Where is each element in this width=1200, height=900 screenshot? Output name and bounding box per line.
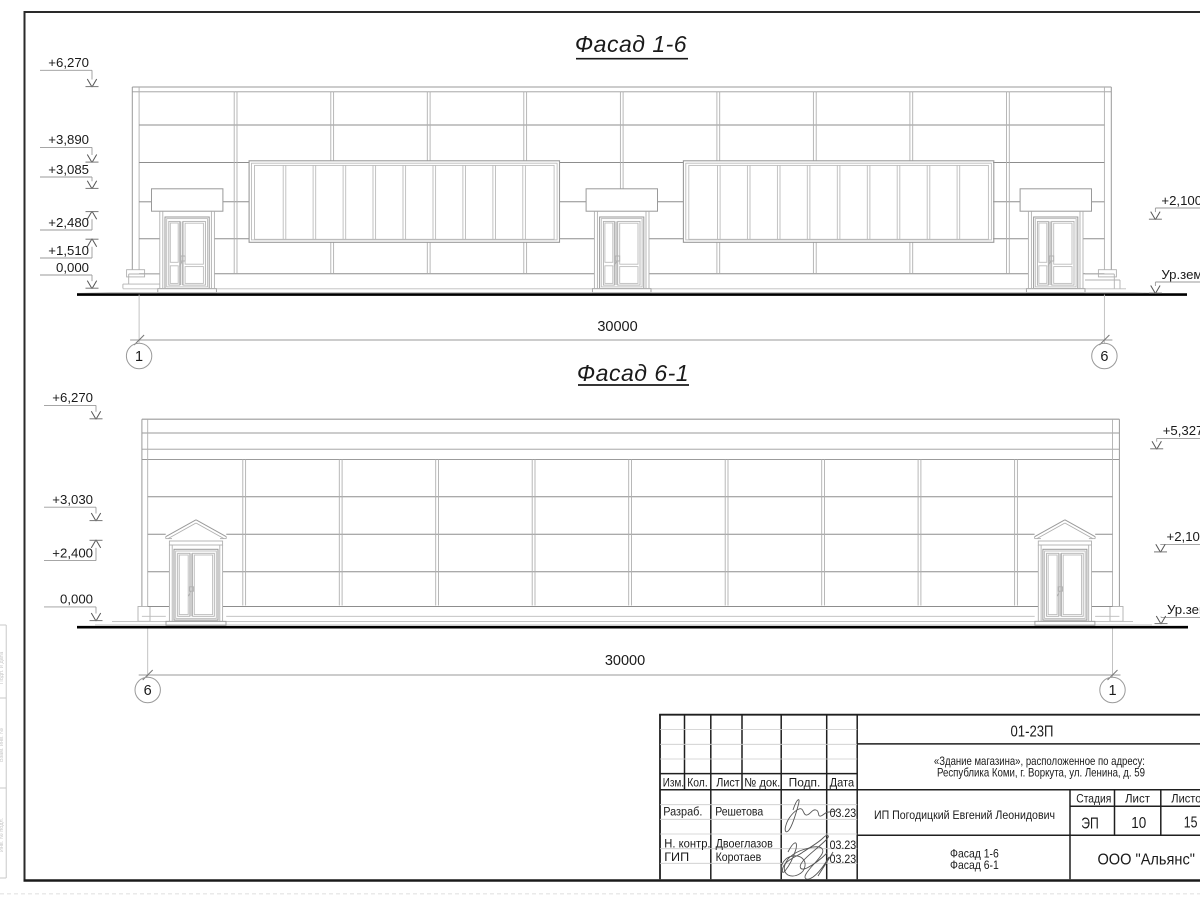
svg-text:0,000: 0,000 bbox=[60, 592, 93, 607]
svg-text:Инв. № подл.: Инв. № подл. bbox=[0, 817, 5, 852]
svg-text:Фасад 6-1: Фасад 6-1 bbox=[950, 858, 999, 872]
svg-text:+6,270: +6,270 bbox=[52, 390, 93, 405]
svg-text:ГИП: ГИП bbox=[664, 850, 689, 864]
svg-text:01-23П: 01-23П bbox=[1011, 724, 1054, 741]
svg-text:+6,270: +6,270 bbox=[48, 55, 89, 70]
svg-text:0,000: 0,000 bbox=[56, 260, 89, 275]
svg-text:Ур.земли: Ур.земли bbox=[1161, 267, 1200, 282]
svg-text:15: 15 bbox=[1184, 815, 1198, 832]
svg-text:Фасад 6-1: Фасад 6-1 bbox=[577, 360, 689, 386]
svg-text:Листов: Листов bbox=[1171, 792, 1200, 806]
svg-text:Двоеглазов: Двоеглазов bbox=[716, 836, 773, 850]
svg-text:6: 6 bbox=[144, 683, 152, 699]
svg-text:ИП Погодицкий Евгений Леонидов: ИП Погодицкий Евгений Леонидович bbox=[874, 808, 1055, 822]
svg-text:Лист: Лист bbox=[716, 775, 740, 789]
svg-text:Изм.: Изм. bbox=[663, 775, 684, 789]
svg-text:03.23: 03.23 bbox=[830, 806, 857, 820]
svg-text:№ док.: № док. bbox=[744, 775, 780, 789]
svg-text:+1,510: +1,510 bbox=[48, 243, 89, 258]
svg-text:1: 1 bbox=[1108, 683, 1116, 699]
svg-text:+2,400: +2,400 bbox=[52, 545, 93, 560]
svg-text:Решетова: Решетова bbox=[715, 805, 763, 819]
svg-text:Фасад 1-6: Фасад 1-6 bbox=[575, 31, 687, 57]
svg-text:Подп.: Подп. bbox=[789, 775, 821, 789]
svg-text:Стадия: Стадия bbox=[1076, 792, 1111, 806]
svg-text:+3,030: +3,030 bbox=[52, 492, 93, 507]
svg-text:Взам. инв. №: Взам. инв. № bbox=[0, 728, 5, 762]
svg-text:Коротаев: Коротаев bbox=[716, 850, 762, 864]
svg-text:10: 10 bbox=[1131, 815, 1146, 832]
svg-text:Ур.земли: Ур.земли bbox=[1167, 602, 1200, 617]
svg-text:ООО "Альянс": ООО "Альянс" bbox=[1097, 852, 1195, 869]
svg-text:+2,100: +2,100 bbox=[1161, 193, 1200, 208]
svg-text:Подп. и дата: Подп. и дата bbox=[0, 651, 5, 684]
svg-text:03.23: 03.23 bbox=[830, 838, 857, 852]
svg-text:Н. контр.: Н. контр. bbox=[664, 836, 710, 850]
svg-text:Республика Коми, г. Воркута, у: Республика Коми, г. Воркута, ул. Ленина,… bbox=[937, 765, 1145, 779]
svg-text:Лист: Лист bbox=[1125, 792, 1150, 806]
svg-text:Дата: Дата bbox=[830, 775, 855, 789]
svg-text:+2,480: +2,480 bbox=[48, 215, 89, 230]
svg-text:1: 1 bbox=[135, 349, 143, 365]
svg-text:6: 6 bbox=[1100, 349, 1108, 365]
svg-text:+3,085: +3,085 bbox=[48, 162, 89, 177]
svg-text:ЭП: ЭП bbox=[1081, 815, 1099, 832]
svg-text:+5,327: +5,327 bbox=[1163, 423, 1200, 438]
svg-text:+2,100: +2,100 bbox=[1167, 529, 1200, 544]
svg-text:30000: 30000 bbox=[597, 319, 637, 335]
svg-text:03.23: 03.23 bbox=[830, 852, 857, 866]
svg-text:Кол.: Кол. bbox=[687, 775, 707, 789]
svg-text:Разраб.: Разраб. bbox=[663, 805, 702, 819]
svg-text:30000: 30000 bbox=[605, 653, 645, 669]
svg-text:+3,890: +3,890 bbox=[48, 132, 89, 147]
